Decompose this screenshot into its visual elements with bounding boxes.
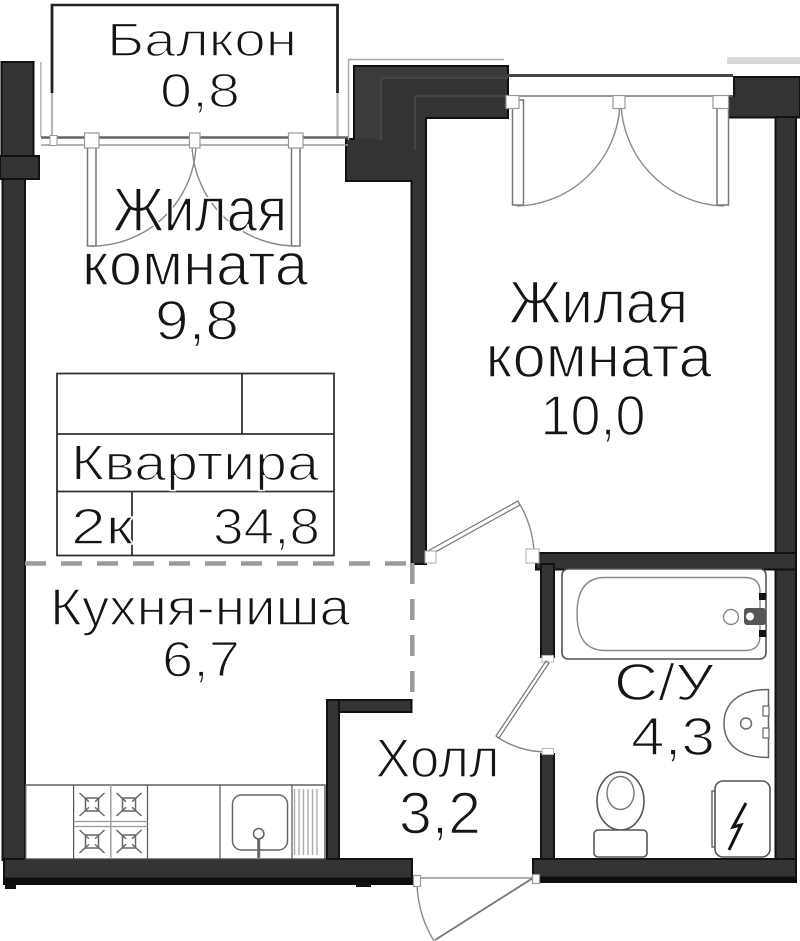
svg-text:3,2: 3,2: [399, 781, 481, 847]
svg-text:комната: комната: [486, 324, 712, 390]
svg-text:10,0: 10,0: [541, 384, 646, 448]
svg-text:С/У: С/У: [614, 654, 715, 712]
svg-text:2к: 2к: [71, 498, 134, 555]
svg-text:0,8: 0,8: [160, 65, 240, 118]
svg-text:34,8: 34,8: [213, 498, 320, 555]
svg-text:6,7: 6,7: [162, 632, 240, 688]
svg-text:9,8: 9,8: [155, 289, 239, 352]
svg-text:Кухня-ниша: Кухня-ниша: [50, 579, 350, 637]
svg-text:Квартира: Квартира: [71, 435, 319, 491]
svg-text:4,3: 4,3: [631, 707, 715, 767]
svg-text:Балкон: Балкон: [107, 13, 297, 66]
